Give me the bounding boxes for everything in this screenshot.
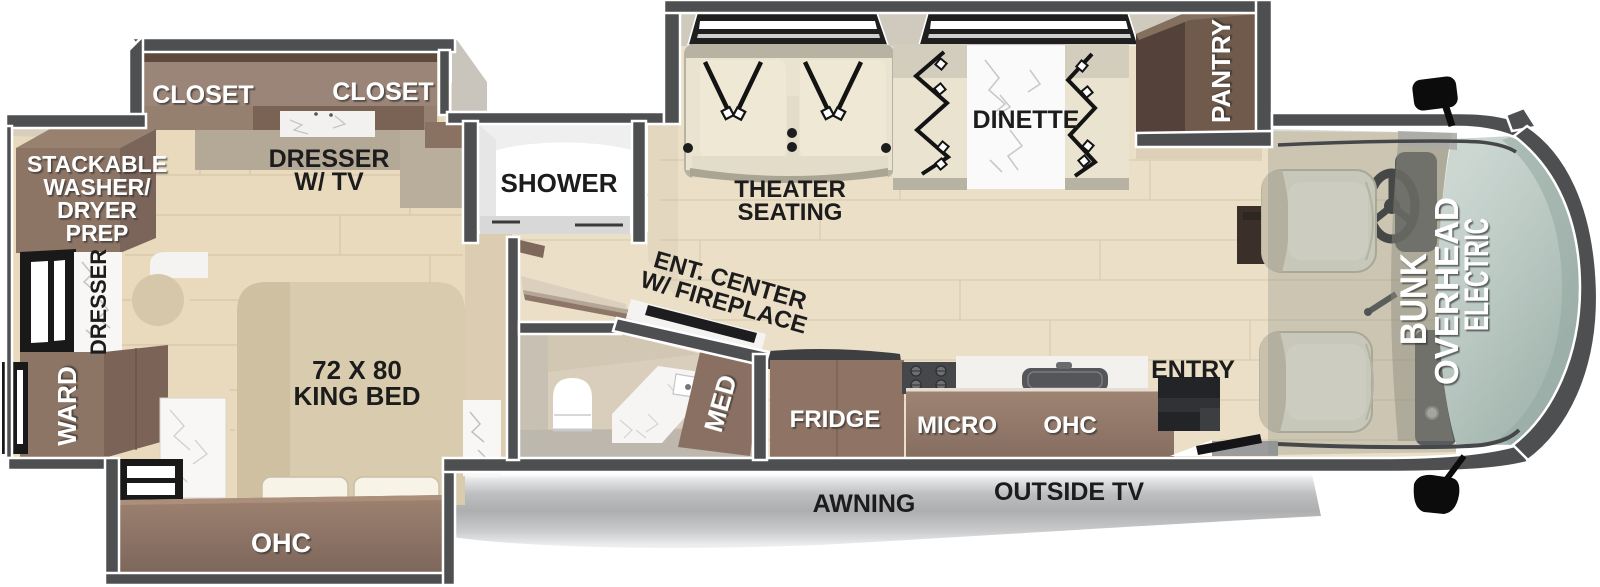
svg-text:OUTSIDE TV: OUTSIDE TV	[994, 478, 1144, 506]
svg-text:SEATING: SEATING	[738, 199, 843, 226]
svg-text:ENTRY: ENTRY	[1151, 356, 1235, 384]
svg-text:PANTRY: PANTRY	[1206, 19, 1236, 123]
svg-text:PREP: PREP	[66, 220, 129, 246]
svg-text:WARD: WARD	[52, 366, 82, 445]
svg-text:CLOSET: CLOSET	[152, 81, 253, 109]
svg-text:AWNING: AWNING	[813, 490, 916, 518]
svg-text:OHC: OHC	[1043, 412, 1096, 439]
svg-text:SHOWER: SHOWER	[501, 168, 618, 198]
svg-text:KING BED: KING BED	[293, 381, 420, 411]
svg-text:FRIDGE: FRIDGE	[790, 406, 881, 433]
svg-text:ELECTRIC: ELECTRIC	[1458, 218, 1496, 331]
svg-text:CLOSET: CLOSET	[332, 78, 433, 106]
svg-text:DINETTE: DINETTE	[973, 106, 1080, 134]
svg-text:W/ TV: W/ TV	[294, 168, 364, 196]
svg-text:DRESSER: DRESSER	[86, 249, 111, 355]
svg-text:OHC: OHC	[251, 528, 311, 558]
svg-text:MICRO: MICRO	[917, 412, 997, 439]
